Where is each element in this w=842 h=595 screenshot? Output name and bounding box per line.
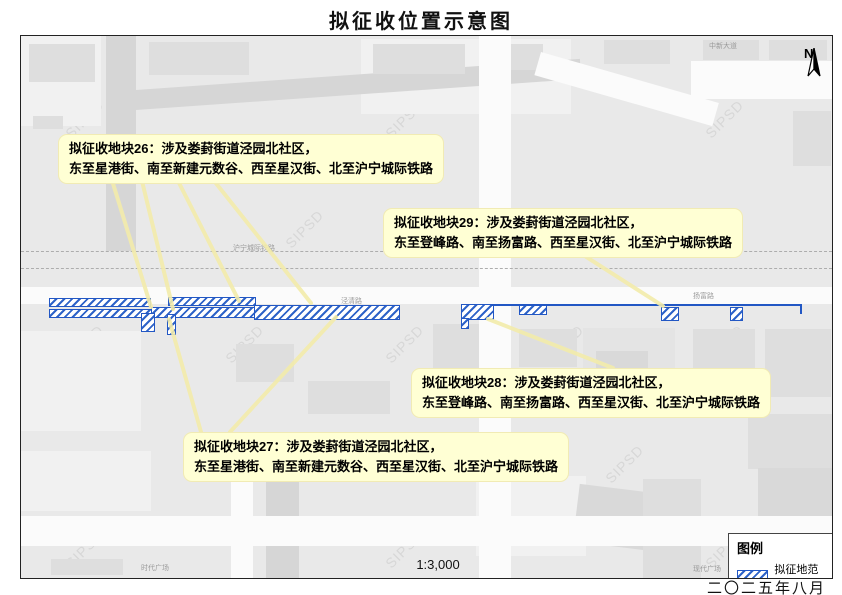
page: 拟征收位置示意图 SIPSDSIPSDSIPSDSIPSDSIPSDSIPSDS… [0,0,842,595]
legend-box: 图例 拟征地范围 [728,533,833,579]
legend-title: 图例 [737,538,825,557]
callout-parcel-27: 拟征收地块27：涉及娄葑街道泾园北社区， 东至星港街、南至新建元数谷、西至星汉街… [183,432,569,482]
callout-parcel-28: 拟征收地块28：涉及娄葑街道泾园北社区， 东至登峰路、南至扬富路、西至星汉街、北… [411,368,771,418]
legend-item: 拟征地范围 [737,561,825,579]
date-label: 二〇二五年八月 [707,577,826,595]
callout-parcel-26: 拟征收地块26：涉及娄葑街道泾园北社区， 东至星港街、南至新建元数谷、西至星汉街… [58,134,444,184]
callout-line: 东至登峰路、南至扬富路、西至星汉街、北至沪宁城际铁路 [422,393,760,413]
callout-line: 东至登峰路、南至扬富路、西至星汉街、北至沪宁城际铁路 [394,233,732,253]
callout-line: 东至星港街、南至新建元数谷、西至星汉街、北至沪宁城际铁路 [69,159,433,179]
callout-parcel-29: 拟征收地块29：涉及娄葑街道泾园北社区， 东至登峰路、南至扬富路、西至星汉街、北… [383,208,743,258]
callout-line: 东至星港街、南至新建元数谷、西至星汉街、北至沪宁城际铁路 [194,457,558,477]
leader-lines [21,36,832,578]
legend-item-label: 拟征地范围 [774,561,825,579]
scale-label: 1:3,000 [388,557,488,572]
callout-line: 拟征收地块26：涉及娄葑街道泾园北社区， [69,139,433,159]
north-label: N [804,48,813,60]
callout-line: 拟征收地块28：涉及娄葑街道泾园北社区， [422,373,760,393]
page-title: 拟征收位置示意图 [0,5,842,34]
callout-line: 拟征收地块27：涉及娄葑街道泾园北社区， [194,437,558,457]
hatch-swatch-icon [737,570,768,579]
map-canvas: SIPSDSIPSDSIPSDSIPSDSIPSDSIPSDSIPSDSIPSD… [20,35,833,579]
north-arrow: N [804,48,824,83]
callout-line: 拟征收地块29：涉及娄葑街道泾园北社区， [394,213,732,233]
